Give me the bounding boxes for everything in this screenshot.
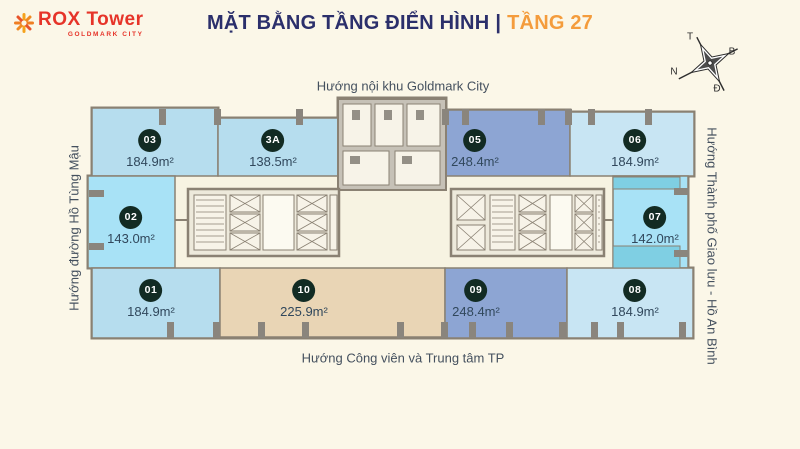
floor-plan-page: ROX Tower GOLDMARK CITY MẶT BẰNG TẦNG ĐI… <box>0 0 800 449</box>
unit-03-region <box>92 108 218 176</box>
unit-01-region <box>92 268 220 338</box>
unit-02-region <box>88 176 175 268</box>
floor-plan: 03184.9m²3A138.5m²05248.4m²06184.9m²0214… <box>0 0 800 449</box>
unit-10-region <box>220 268 445 337</box>
unit-3A-region <box>218 118 340 176</box>
unit-08-region <box>567 268 693 338</box>
floor-plan-drawing <box>0 0 800 449</box>
